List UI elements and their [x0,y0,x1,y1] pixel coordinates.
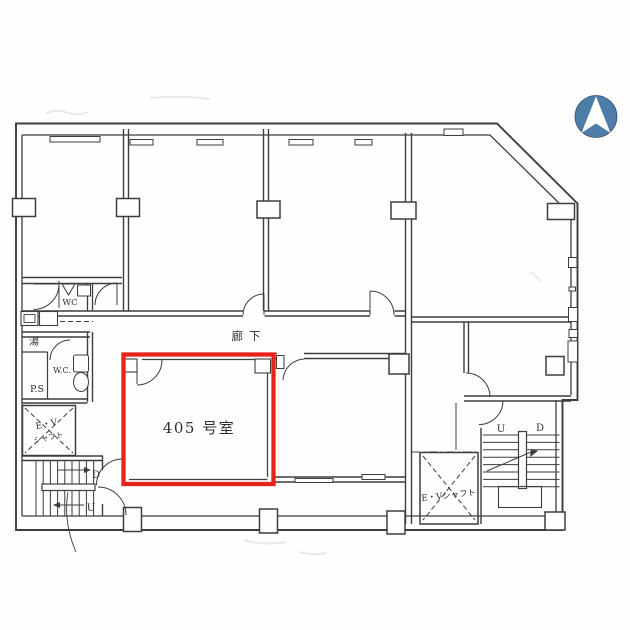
door-arc-vestibule [466,373,490,397]
wc-upper-label: WC [62,298,77,308]
stair-arrow-up [53,502,60,508]
door-arc-wc-lower [50,340,70,360]
stairs-left-up-label: U [87,503,95,514]
ev-shaft-right-label: E・Vシャフト [421,488,477,504]
toilet-bowl [74,373,89,392]
toilet-tank [74,355,89,372]
shaft-cross [25,408,73,453]
floor-plan-page: 405 号室 廊下 WC W.C. P.S 湯 E・V シャフト E・Vシャフト… [0,0,630,630]
door-arc-room3 [370,291,394,315]
north-arrow-icon [575,96,617,138]
stair-handrail [519,432,527,489]
corridor-label: 廊下 [232,329,267,343]
door-arc-east-room [283,359,305,380]
stair-arrow-down [84,467,91,473]
wc-lower-label: W.C. [53,366,71,375]
wall-notch [255,359,271,373]
stairs-right-down-label: D [536,423,544,434]
room-405-label: 405 号室 [163,419,235,437]
kitchenette [21,312,93,326]
door-arc-stairhall-upper [97,459,123,485]
door-arc-room2 [243,294,264,315]
door-arc-lobby [95,283,117,305]
urinal-fixture [62,284,75,295]
stair-handrail [42,484,95,491]
east-band-door [277,356,305,381]
building-outline [16,124,578,531]
door-arc-room405 [137,360,162,385]
elevator-shaft-left [23,406,76,456]
sink-fixture [78,285,91,296]
stairs-left-down-label: D [92,470,100,481]
stairs-left [22,456,126,552]
scan-noise [46,97,541,555]
door-arc-wc-upper [34,284,60,310]
stairs-right [481,428,560,524]
pipe-shaft-label: P.S [30,384,44,395]
shaft-cross [423,456,475,520]
stairs-right-up-label: U [497,424,505,435]
floor-plan-drawing: 405 号室 廊下 WC W.C. P.S 湯 E・V シャフト E・Vシャフト… [0,0,630,630]
door-arc-stairhall-right [479,401,503,425]
ev-shaft-left-label-2: シャフト [33,430,64,445]
stair-landing [499,487,542,508]
hot-water-label: 湯 [29,335,39,348]
vestibule-doors [466,373,503,425]
